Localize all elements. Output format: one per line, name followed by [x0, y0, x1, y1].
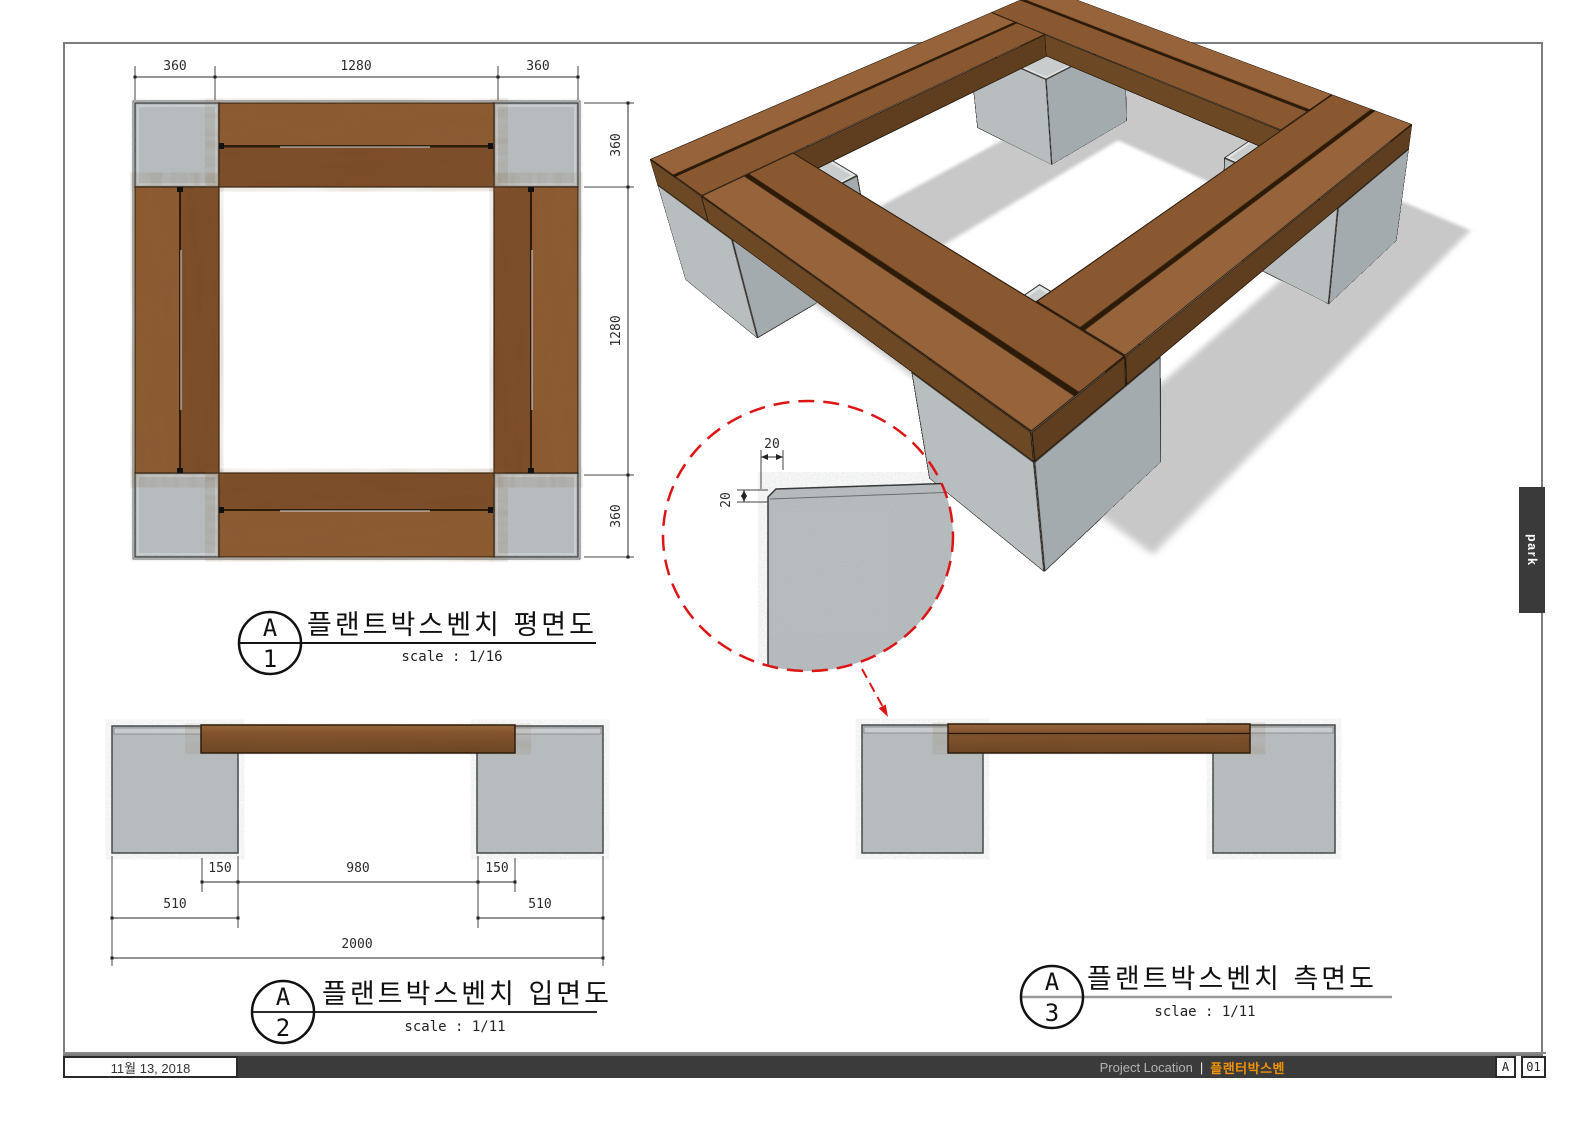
project-name: 플랜터박스벤: [1210, 1058, 1285, 1077]
date-cell: 11월 13, 2018: [63, 1056, 238, 1078]
titlebar: 11월 13, 2018 Project Location | 플랜터박스벤 A…: [63, 1056, 1546, 1078]
project-location-bar: Project Location | 플랜터박스벤: [238, 1056, 1495, 1078]
separator: |: [1200, 1060, 1203, 1075]
perspective-view: [795, 30, 1545, 645]
sheet-number: 01: [1526, 1060, 1540, 1074]
park-tab-label: park: [1525, 534, 1539, 566]
date-text: 11월 13, 2018: [111, 1058, 191, 1077]
drawing-sheet: 360 1280 360 360 1280 360: [0, 0, 1587, 1122]
sheet-letter: A: [1502, 1060, 1509, 1074]
titlebar-top-rule: [63, 1052, 1546, 1054]
project-location-label: Project Location: [1100, 1060, 1193, 1075]
sheet-number-cell: 01: [1521, 1056, 1546, 1078]
park-sheet-tab[interactable]: park: [1519, 487, 1545, 613]
sheet-letter-cell: A: [1495, 1056, 1516, 1078]
